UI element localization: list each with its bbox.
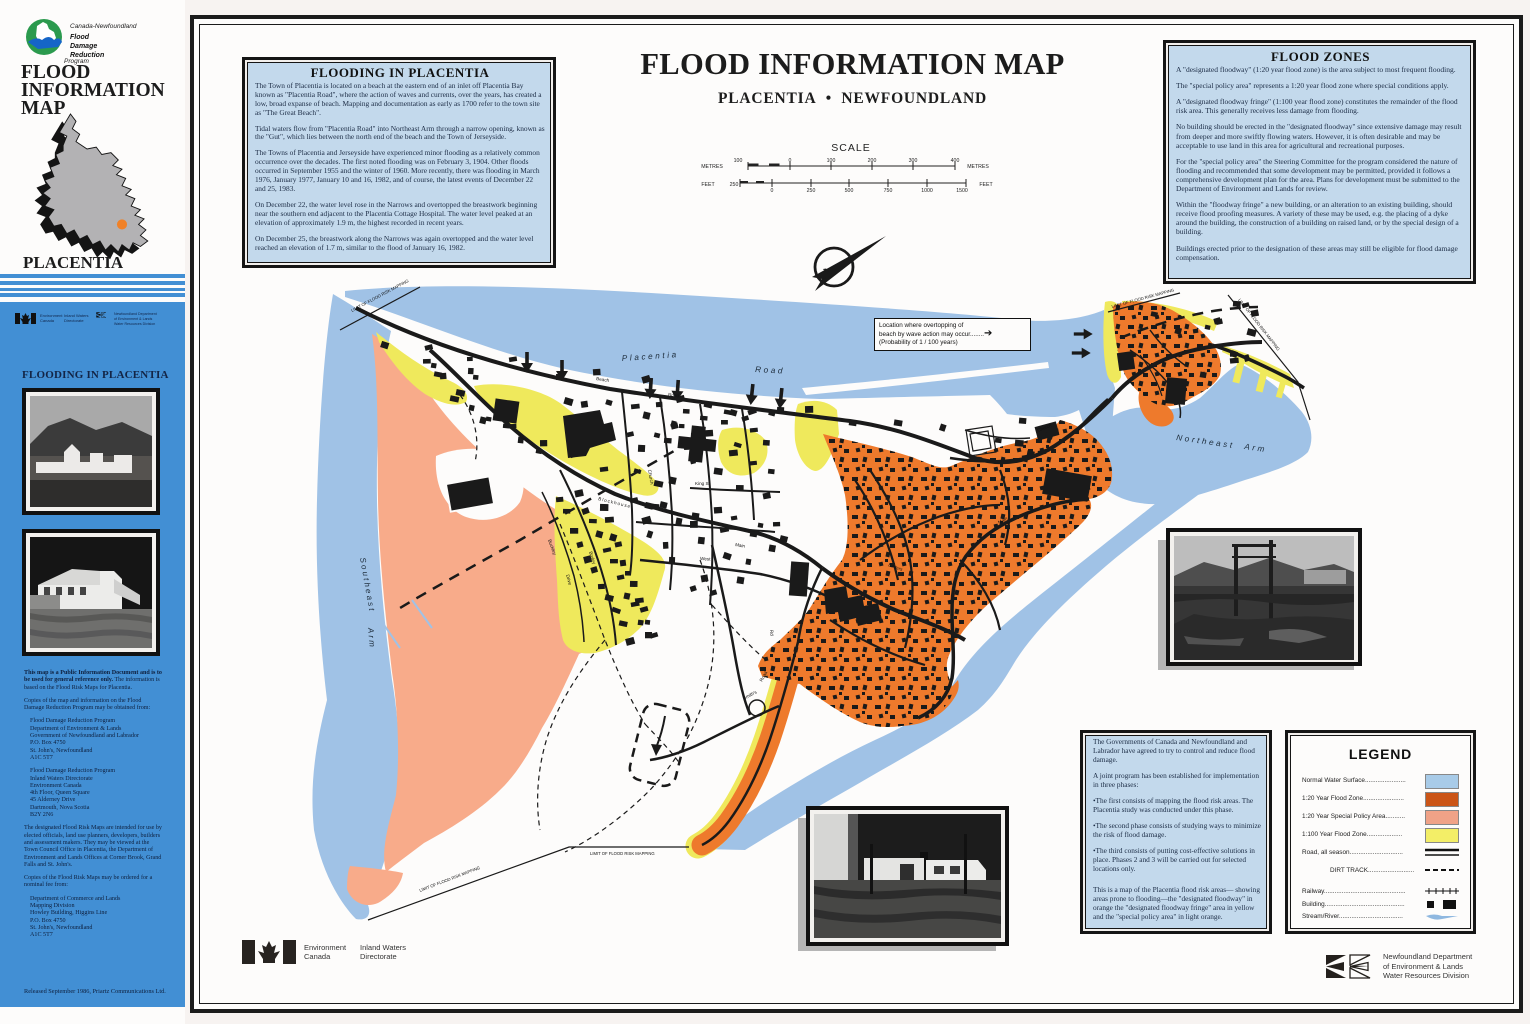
svg-text:1000: 1000 xyxy=(921,188,933,194)
svg-text:LIMIT OF FLOOD RISK MAPPING: LIMIT OF FLOOD RISK MAPPING xyxy=(419,865,481,893)
svg-text:400: 400 xyxy=(951,158,960,164)
svg-text:100: 100 xyxy=(734,158,743,164)
svg-text:King St: King St xyxy=(695,481,711,486)
svg-text:300: 300 xyxy=(909,158,918,164)
svg-text:METRES: METRES xyxy=(967,164,989,170)
svg-text:FEET: FEET xyxy=(979,182,993,188)
svg-text:0: 0 xyxy=(771,188,774,194)
svg-text:Beach: Beach xyxy=(596,376,610,383)
svg-text:FEET: FEET xyxy=(701,182,715,188)
svg-text:1500: 1500 xyxy=(956,188,968,194)
svg-text:Smith's: Smith's xyxy=(742,689,758,701)
svg-text:SCALE: SCALE xyxy=(831,142,870,154)
svg-text:LIMIT OF FLOOD RISK MAPPING: LIMIT OF FLOOD RISK MAPPING xyxy=(590,851,655,856)
svg-text:Rd: Rd xyxy=(769,630,775,637)
svg-text:500: 500 xyxy=(845,188,854,194)
svg-text:Main: Main xyxy=(735,542,746,549)
svg-text:750: 750 xyxy=(884,188,893,194)
svg-text:METRES: METRES xyxy=(701,164,723,170)
svg-text:Road: Road xyxy=(755,365,785,376)
svg-text:200: 200 xyxy=(868,158,877,164)
svg-text:0: 0 xyxy=(789,158,792,164)
svg-text:250: 250 xyxy=(807,188,816,194)
svg-text:100: 100 xyxy=(827,158,836,164)
svg-text:West: West xyxy=(700,556,711,562)
svg-text:250: 250 xyxy=(730,182,739,188)
